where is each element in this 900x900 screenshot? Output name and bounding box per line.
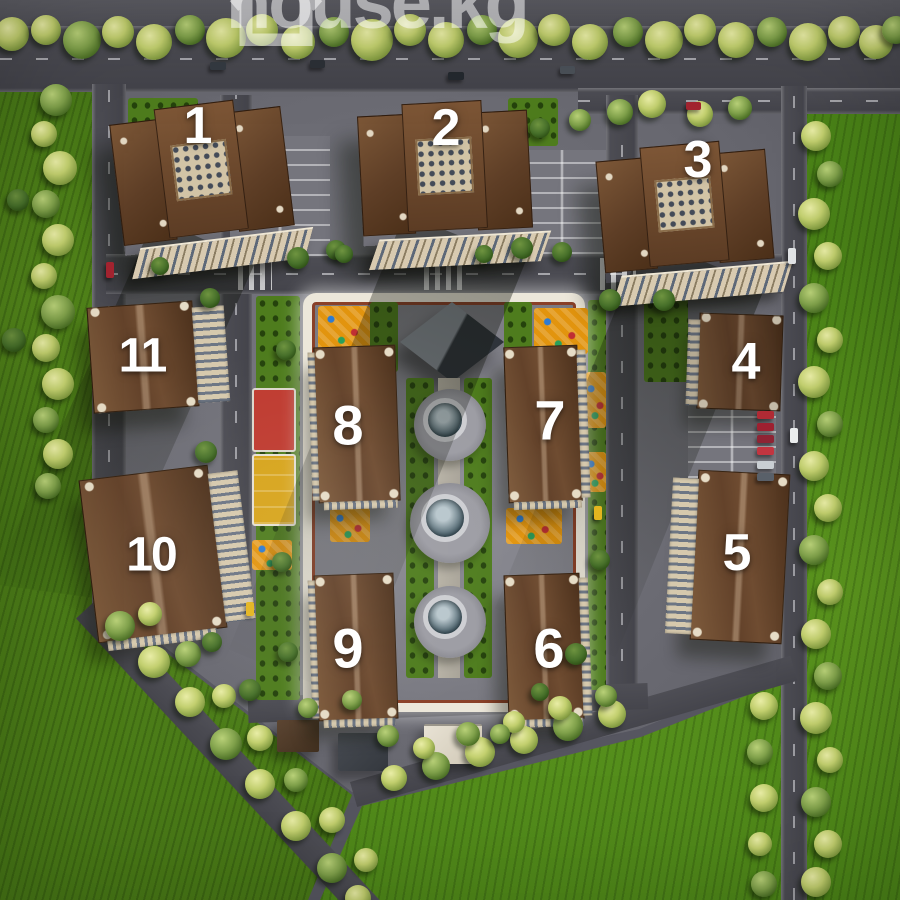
playground-courtyard-w: [330, 508, 370, 542]
building-label-6: 6: [533, 616, 562, 681]
building-label-3: 3: [684, 130, 711, 190]
facade: [685, 319, 700, 405]
sidewalk-top: [0, 0, 900, 26]
sports-court-yellow: [252, 454, 296, 526]
field-left: [0, 84, 92, 624]
playground-courtyard-nw: [318, 306, 370, 350]
basketball-court: [252, 388, 296, 452]
building-label-9: 9: [332, 616, 361, 681]
facade: [192, 305, 231, 403]
pyramid-roof: [400, 302, 504, 382]
playground-east: [586, 372, 606, 428]
building-label-5: 5: [723, 523, 750, 583]
pavilion: [277, 720, 319, 752]
building-label-7: 7: [534, 388, 563, 453]
building-label-4: 4: [732, 332, 759, 392]
building-label-1: 1: [184, 96, 211, 156]
main-road-top: [0, 26, 900, 92]
fountain: [423, 398, 467, 442]
glass-pyramid: [400, 302, 504, 382]
playground-west: [252, 540, 292, 570]
lawn-east-strip: [588, 300, 606, 690]
building-label-11: 11: [119, 329, 166, 384]
pavilion: [338, 733, 388, 771]
site-plan-aerial-view: 1 2 3 4 5 6 7 8 9 10 11 house.kg: [0, 0, 900, 900]
building-label-2: 2: [432, 98, 459, 158]
building-label-8: 8: [332, 393, 361, 458]
fountain: [423, 595, 467, 639]
building-label-10: 10: [126, 528, 175, 583]
playground-courtyard-e: [506, 508, 562, 544]
lawn-northeast: [644, 298, 688, 382]
utility-building: [424, 724, 482, 764]
field-right: [806, 114, 900, 900]
fountain: [421, 494, 469, 542]
